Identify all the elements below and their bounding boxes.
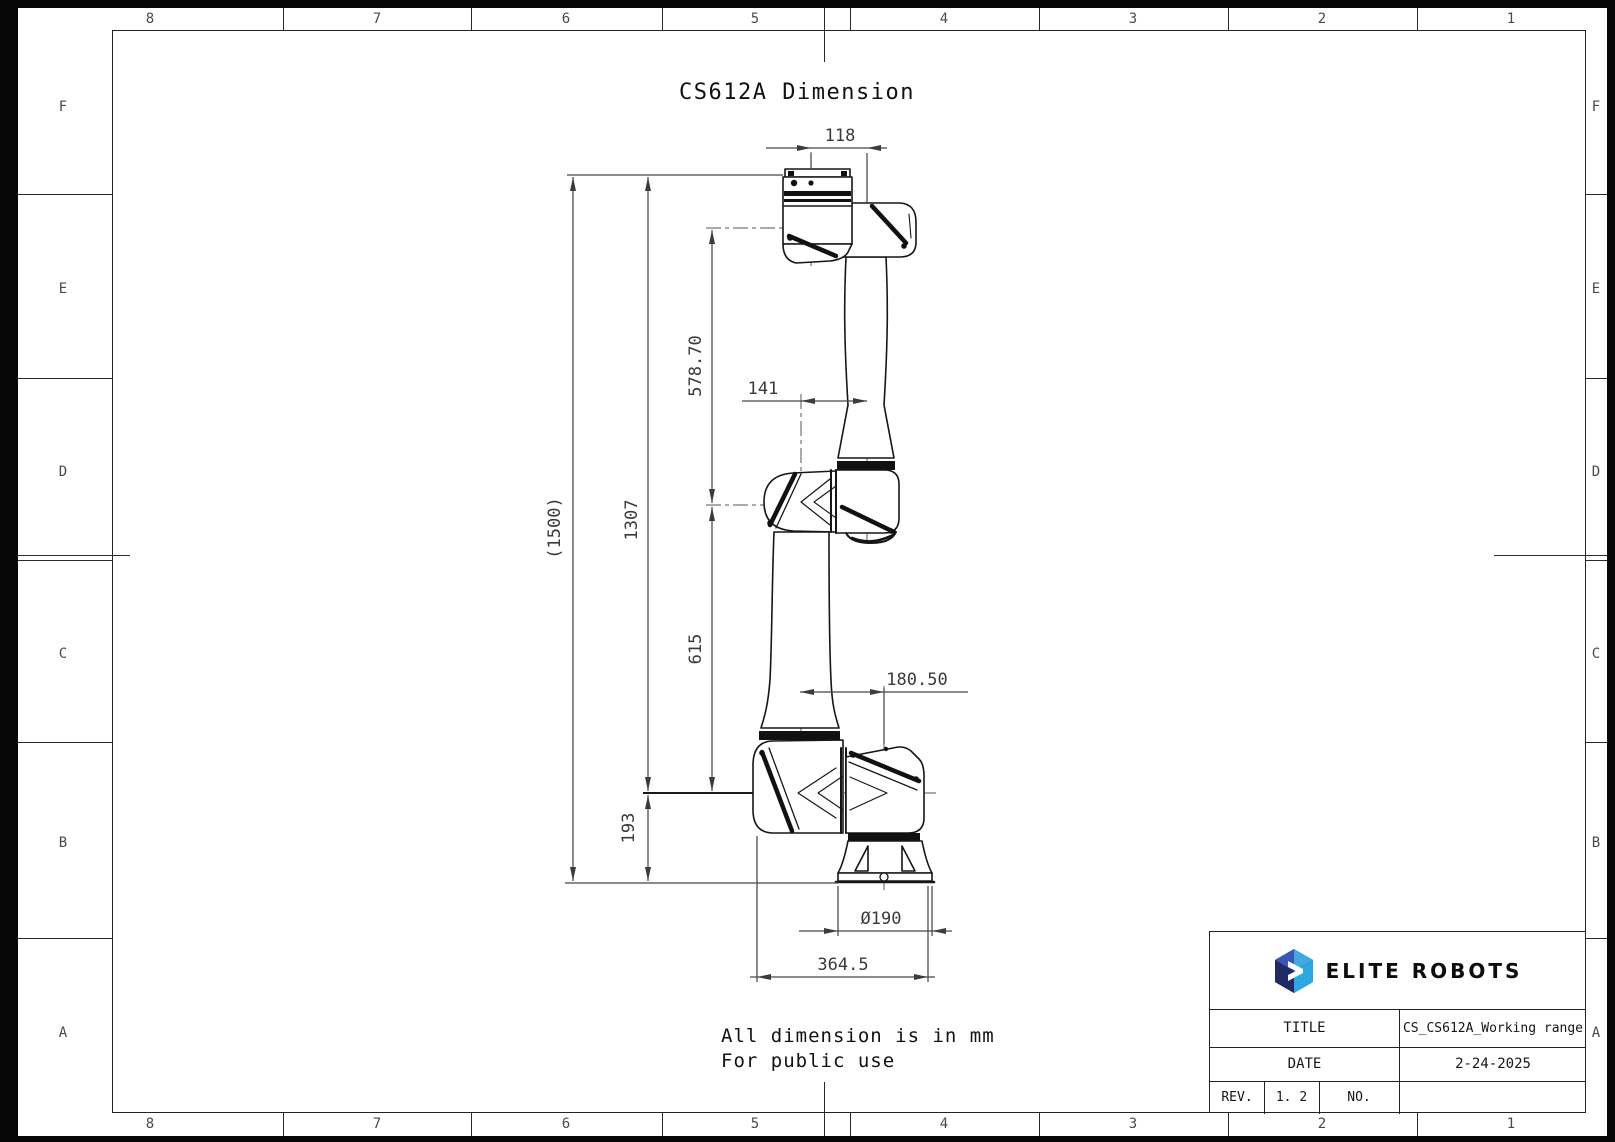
- elite-robots-logo-icon: [1273, 947, 1315, 995]
- shoulder-left-lobe: [753, 740, 843, 833]
- lower-arm-band: [759, 731, 840, 740]
- dim-label-364: 364.5: [817, 955, 868, 975]
- date-label-cell: DATE: [1210, 1047, 1399, 1081]
- brand-name: ELITE ROBOTS: [1326, 959, 1523, 983]
- shoulder-stripe-dot: [850, 752, 856, 758]
- lower-arm-tube: [761, 532, 839, 728]
- elbow-stripe-dot: [767, 520, 773, 526]
- drawing-sheet-screenshot: 8 7 6 5 4 3 2 1 8 7 6 5 4 3 2 1 F E D C …: [0, 0, 1615, 1142]
- no-label-cell: NO.: [1319, 1081, 1399, 1114]
- note-units: All dimension is in mm: [721, 1025, 995, 1047]
- flange-screw: [808, 180, 813, 185]
- title-value-cell: CS_CS612A_Working range: [1399, 1009, 1587, 1047]
- elbow-right-lobe: [836, 470, 899, 533]
- tool-flange-plate: [785, 169, 850, 177]
- dim-label-193: 193: [619, 813, 639, 844]
- elbow-left-lobe: [764, 471, 836, 532]
- shoulder-stripe-dot: [913, 776, 919, 782]
- dim-label-615: 615: [686, 634, 706, 665]
- drawing-title: CS612A Dimension: [679, 80, 915, 105]
- rev-value-cell: 1. 2: [1264, 1081, 1319, 1114]
- flange-band: [784, 191, 851, 196]
- dim-label-578: 578.70: [686, 335, 706, 396]
- flange-screw: [791, 180, 797, 186]
- wrist-stripe-dot: [901, 243, 907, 249]
- base-flare: [838, 841, 932, 873]
- note-public: For public use: [721, 1050, 895, 1072]
- title-block: ELITE ROBOTS TITLE CS_CS612A_Working ran…: [1209, 931, 1586, 1113]
- dim-label-180: 180.50: [886, 670, 947, 690]
- title-label-cell: TITLE: [1210, 1009, 1399, 1047]
- dim-label-1500: (1500): [545, 497, 565, 558]
- dim-label-1307: 1307: [622, 500, 642, 541]
- no-value-cell: [1399, 1081, 1587, 1114]
- robot-arm: [753, 169, 934, 882]
- rev-label-cell: REV.: [1210, 1081, 1264, 1114]
- flange-notch: [788, 171, 794, 176]
- shoulder-top-dot: [884, 747, 888, 751]
- base-center-hole: [880, 873, 888, 881]
- shoulder-stripe-dot: [759, 750, 765, 756]
- elbow-stripe-dot: [888, 528, 894, 534]
- upper-arm-band: [837, 461, 895, 470]
- upper-arm-tube: [838, 257, 894, 458]
- flange-notch: [841, 171, 847, 176]
- shoulder-right-lobe: [846, 747, 924, 833]
- base-neck-band: [848, 833, 920, 841]
- wrist-wedge-dot: [787, 235, 793, 241]
- brand-row: ELITE ROBOTS: [1210, 932, 1585, 1009]
- dim-label-190: Ø190: [861, 909, 902, 929]
- tool-flange-body: [783, 177, 852, 244]
- dim-label-141: 141: [748, 379, 779, 399]
- date-value-cell: 2-24-2025: [1399, 1047, 1587, 1081]
- dim-label-118: 118: [825, 126, 856, 146]
- flange-band: [784, 199, 851, 202]
